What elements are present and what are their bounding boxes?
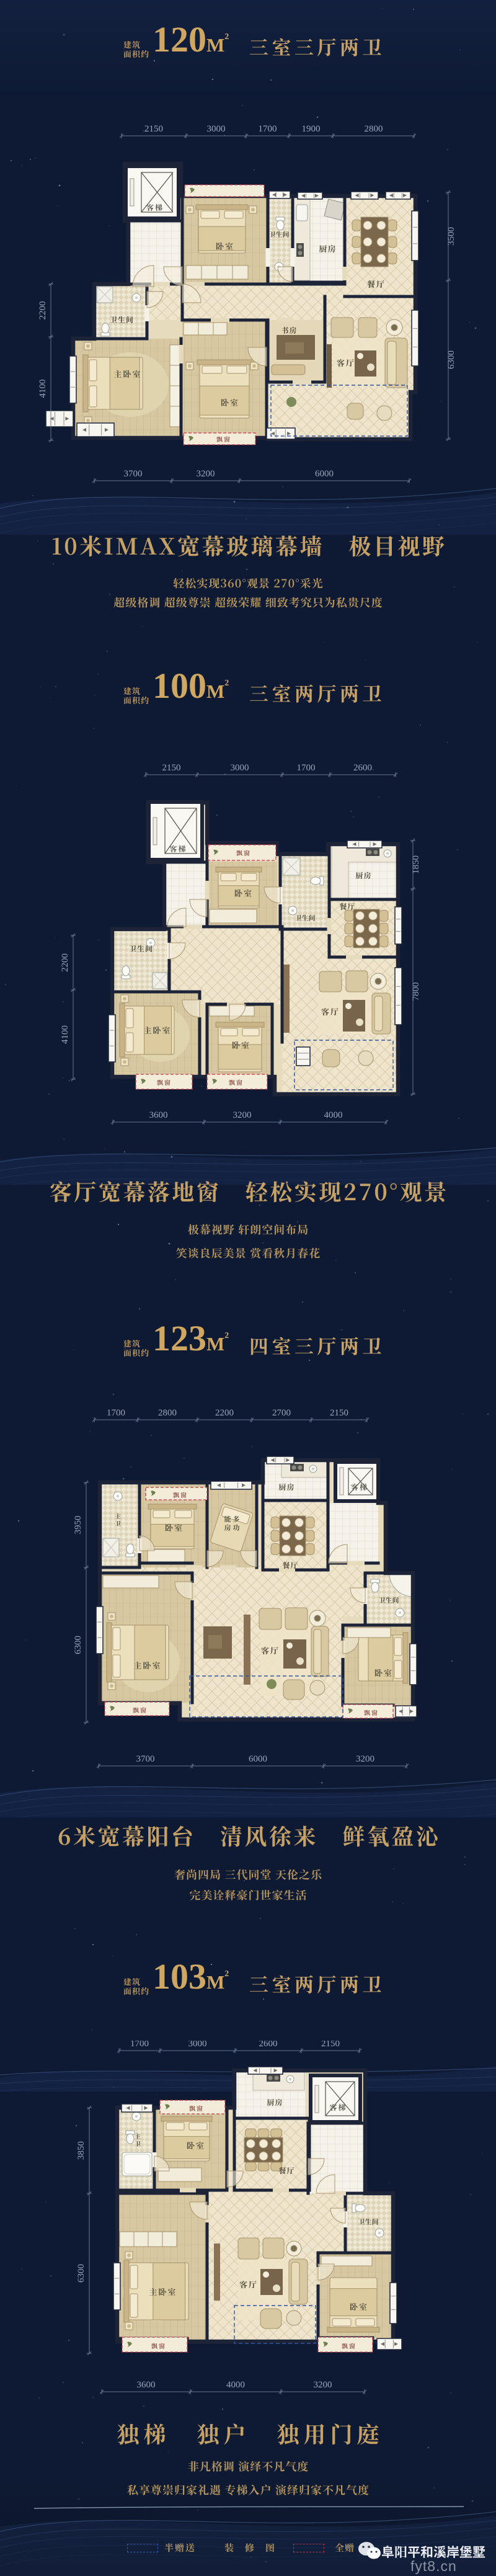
svg-text:1700: 1700: [107, 1408, 125, 1418]
svg-text:2600: 2600: [353, 763, 372, 773]
svg-text:4000: 4000: [226, 2380, 245, 2390]
svg-text:6300: 6300: [76, 2264, 86, 2283]
svg-text:2800: 2800: [158, 1408, 177, 1418]
svg-text:1700: 1700: [130, 2041, 149, 2049]
svg-text:6300: 6300: [446, 350, 456, 369]
svg-text:2150: 2150: [162, 763, 181, 773]
svg-text:2150: 2150: [321, 2041, 340, 2049]
svg-text:6000: 6000: [315, 469, 334, 479]
svg-text:3600: 3600: [149, 1110, 168, 1120]
svg-text:3200: 3200: [197, 469, 215, 479]
svg-text:6300: 6300: [73, 1636, 83, 1654]
svg-text:3000: 3000: [231, 763, 249, 773]
svg-text:1700: 1700: [259, 124, 277, 134]
svg-text:2800: 2800: [365, 124, 383, 134]
svg-text:7800: 7800: [411, 983, 421, 1001]
svg-text:2150: 2150: [330, 1408, 348, 1418]
svg-text:2200: 2200: [215, 1408, 234, 1418]
svg-text:2150: 2150: [144, 124, 163, 134]
svg-text:6000: 6000: [249, 1754, 267, 1764]
svg-text:3200: 3200: [233, 1110, 252, 1120]
svg-text:3600: 3600: [137, 2380, 156, 2390]
svg-text:2200: 2200: [60, 953, 70, 972]
svg-text:4100: 4100: [38, 380, 48, 398]
svg-text:1900: 1900: [302, 124, 321, 134]
svg-text:1850: 1850: [411, 855, 421, 874]
svg-text:3200: 3200: [356, 1754, 374, 1764]
svg-text:2200: 2200: [38, 301, 48, 320]
svg-text:3850: 3850: [76, 2141, 86, 2160]
svg-text:4000: 4000: [324, 1110, 343, 1120]
svg-text:3200: 3200: [314, 2380, 332, 2390]
svg-text:3700: 3700: [136, 1754, 155, 1764]
svg-text:1700: 1700: [297, 763, 316, 773]
svg-text:3500: 3500: [446, 227, 456, 246]
svg-text:2600: 2600: [259, 2041, 278, 2049]
svg-text:2700: 2700: [272, 1408, 291, 1418]
svg-text:3950: 3950: [73, 1516, 83, 1535]
svg-text:3700: 3700: [124, 469, 143, 479]
svg-text:3000: 3000: [207, 124, 226, 134]
svg-text:3000: 3000: [188, 2041, 207, 2049]
svg-text:4100: 4100: [60, 1025, 70, 1044]
